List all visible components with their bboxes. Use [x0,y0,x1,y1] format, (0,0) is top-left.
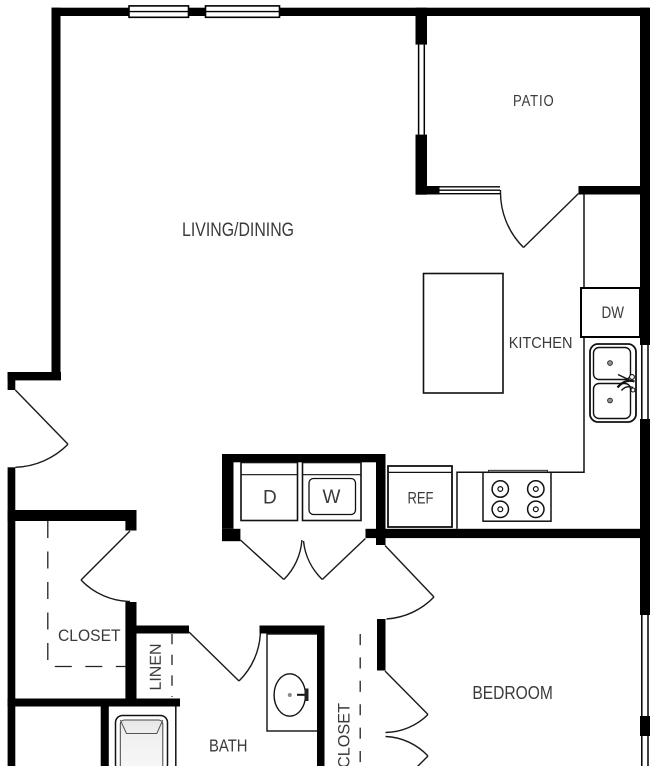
svg-text:LINEN: LINEN [148,644,165,691]
svg-text:CLOSET: CLOSET [58,626,121,645]
svg-text:W: W [323,487,341,508]
svg-text:CLOSET: CLOSET [335,703,354,766]
svg-text:LIVING/DINING: LIVING/DINING [182,220,294,241]
svg-text:DW: DW [602,304,625,322]
svg-text:D: D [263,488,277,509]
svg-text:KITCHEN: KITCHEN [509,335,573,352]
svg-text:REF: REF [408,489,434,508]
svg-text:BATH: BATH [209,736,248,756]
svg-text:BEDROOM: BEDROOM [472,683,553,703]
svg-text:PATIO: PATIO [513,93,555,110]
